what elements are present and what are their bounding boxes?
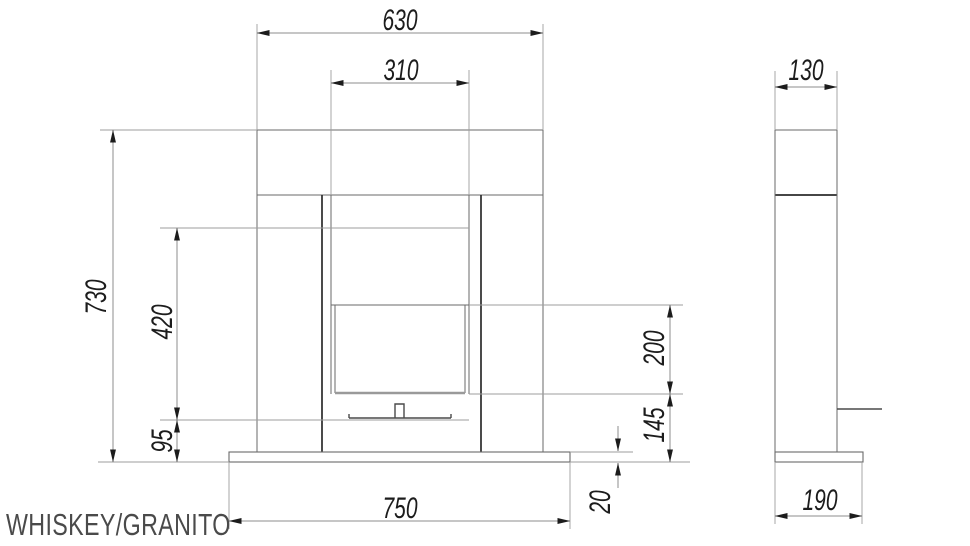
dimension-420-firebox-height: 420 <box>147 228 469 420</box>
dim-label-190: 190 <box>802 485 838 517</box>
mantel-shelf-outline <box>257 130 543 195</box>
side-view <box>775 130 882 462</box>
drawing-title: WHISKEY/GRANITO <box>6 507 231 542</box>
dim-label-310: 310 <box>383 55 419 87</box>
dimension-730-total-height: 730 <box>81 130 257 462</box>
drawing-page: 630 310 730 420 95 200 145 20 <box>0 0 970 546</box>
dimension-130-top-depth: 130 <box>775 55 837 130</box>
dim-label-420: 420 <box>147 304 179 340</box>
burner-block <box>395 404 404 418</box>
pillar-inner-edges <box>322 195 481 452</box>
dim-label-630: 630 <box>382 5 418 37</box>
front-base-plinth <box>229 452 570 462</box>
burner-tray <box>349 404 451 418</box>
technical-drawing-canvas: 630 310 730 420 95 200 145 20 <box>0 0 970 546</box>
dimension-190-base-depth: 190 <box>775 462 862 524</box>
firebox-insert-outline <box>331 195 469 394</box>
dimension-20-base-thickness: 20 <box>570 426 633 514</box>
dim-label-200: 200 <box>639 330 671 366</box>
dimension-95-burner-to-floor: 95 <box>147 420 179 462</box>
dimension-310-firebox-width: 310 <box>331 55 469 195</box>
dim-label-750: 750 <box>382 493 418 525</box>
dim-label-20: 20 <box>585 490 617 515</box>
dim-label-145: 145 <box>639 407 671 443</box>
front-view <box>229 130 570 462</box>
dim-label-130: 130 <box>788 55 824 87</box>
dimension-750-base-width: 750 <box>229 462 570 529</box>
dimension-200-glass-height: 200 <box>469 305 683 394</box>
dim-label-95: 95 <box>147 429 179 453</box>
side-base-plinth <box>775 452 863 462</box>
dim-label-730: 730 <box>81 279 113 315</box>
